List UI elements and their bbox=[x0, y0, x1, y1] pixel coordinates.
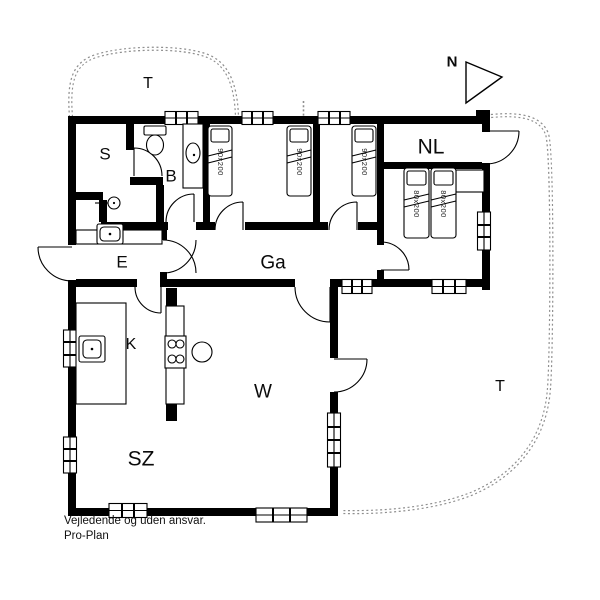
room-label-kitchen: K bbox=[126, 337, 137, 353]
north-arrow-icon bbox=[466, 62, 502, 103]
room-label-terrace-top: T bbox=[143, 76, 153, 92]
room-label-living-room: SZ bbox=[128, 449, 155, 470]
washbasin-icon bbox=[183, 124, 203, 188]
kitchen-counter bbox=[76, 303, 126, 404]
stove-icon bbox=[165, 306, 186, 404]
room-label-s: S bbox=[99, 146, 110, 163]
room-label-bathroom: B bbox=[165, 168, 176, 185]
bed-size-label: 80x200 bbox=[439, 190, 447, 218]
footer-brand: Pro-Plan bbox=[64, 530, 109, 542]
floorplan-drawing bbox=[0, 0, 600, 600]
bed-size-label: 90x200 bbox=[295, 148, 303, 176]
room-label-terrace-right: T bbox=[495, 379, 505, 395]
room-label-hallway: Ga bbox=[260, 254, 285, 273]
floorplan-page: T S B NL E Ga K W SZ T N 90x200 90x200 9… bbox=[0, 0, 600, 600]
room-label-nl: NL bbox=[418, 137, 445, 158]
terrace-outline-top bbox=[70, 49, 237, 117]
room-label-w-room: W bbox=[254, 383, 272, 402]
bed-size-label: 80x200 bbox=[412, 190, 420, 218]
wardrobe-icon bbox=[456, 170, 484, 192]
bed-size-label: 90x200 bbox=[360, 148, 368, 176]
room-label-entrance: E bbox=[116, 254, 127, 271]
bed-size-label: 90x200 bbox=[216, 148, 224, 176]
round-sink-icon bbox=[192, 342, 212, 362]
north-label: N bbox=[447, 55, 458, 70]
footer-disclaimer: Vejledende og uden ansvar. bbox=[64, 515, 206, 527]
